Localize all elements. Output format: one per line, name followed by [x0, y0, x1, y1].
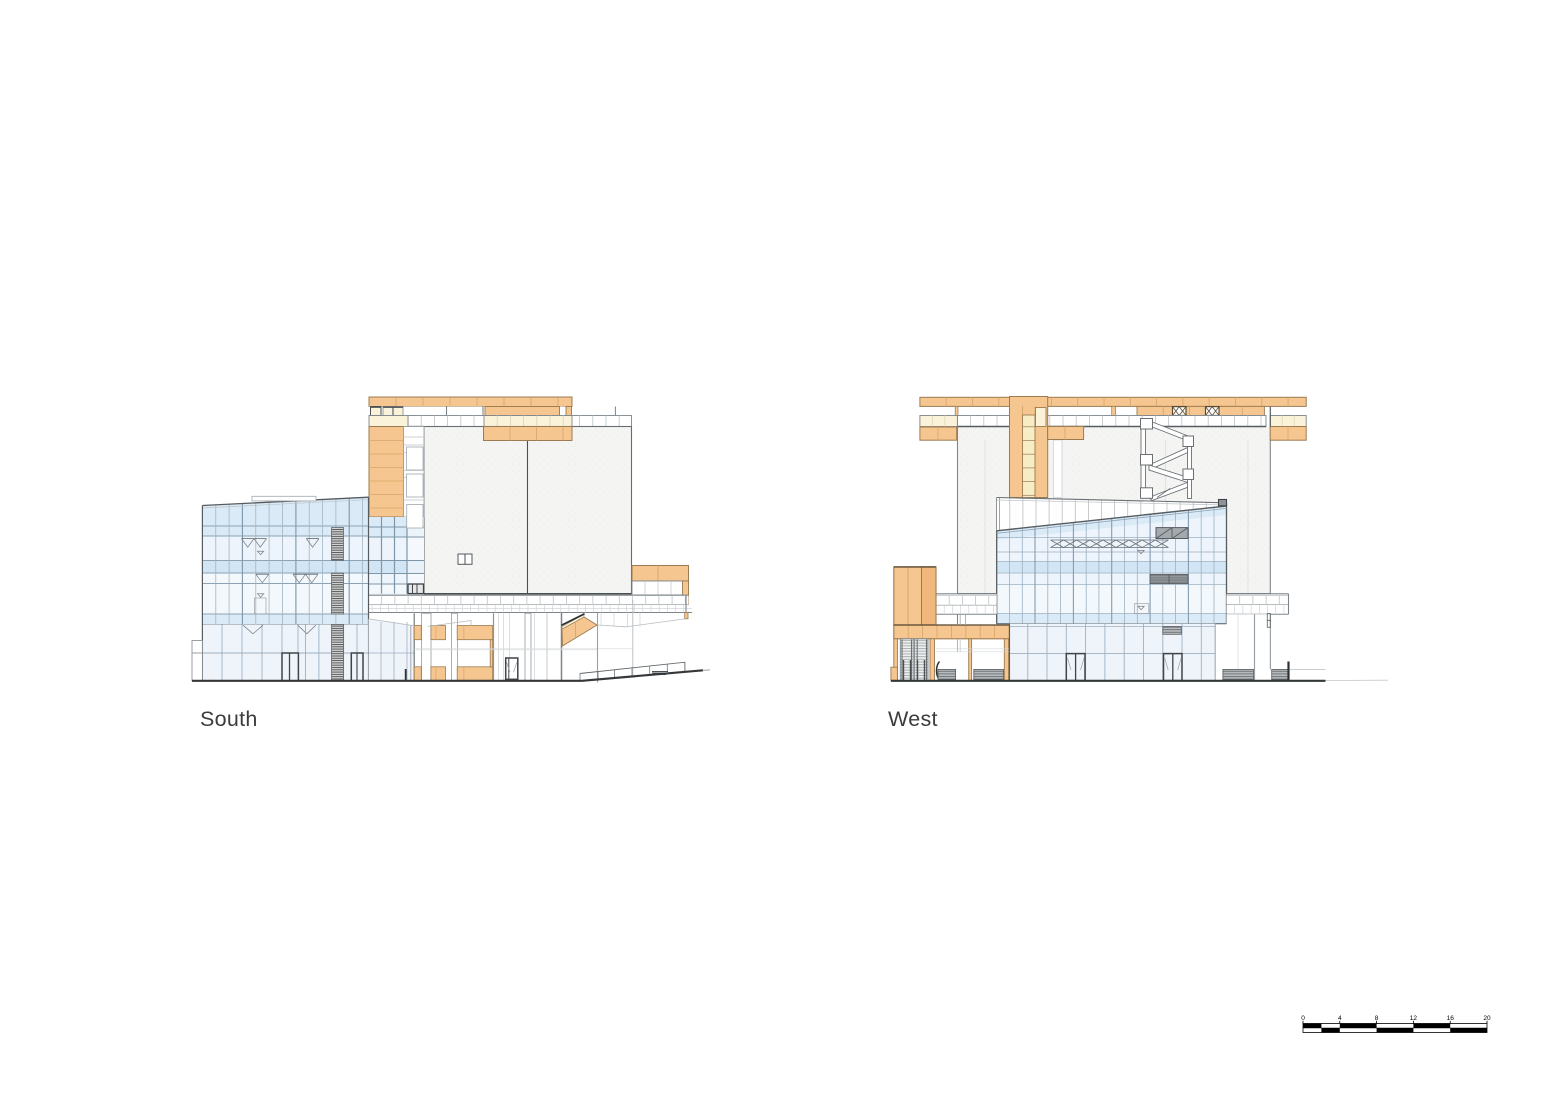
svg-text:20: 20 [1483, 1015, 1491, 1022]
svg-text:16: 16 [1447, 1015, 1455, 1022]
svg-text:12: 12 [1410, 1015, 1418, 1022]
svg-text:West: West [888, 707, 938, 731]
svg-text:4: 4 [1338, 1015, 1342, 1022]
svg-text:0: 0 [1301, 1015, 1305, 1022]
svg-text:South: South [200, 707, 258, 731]
svg-text:8: 8 [1375, 1015, 1379, 1022]
